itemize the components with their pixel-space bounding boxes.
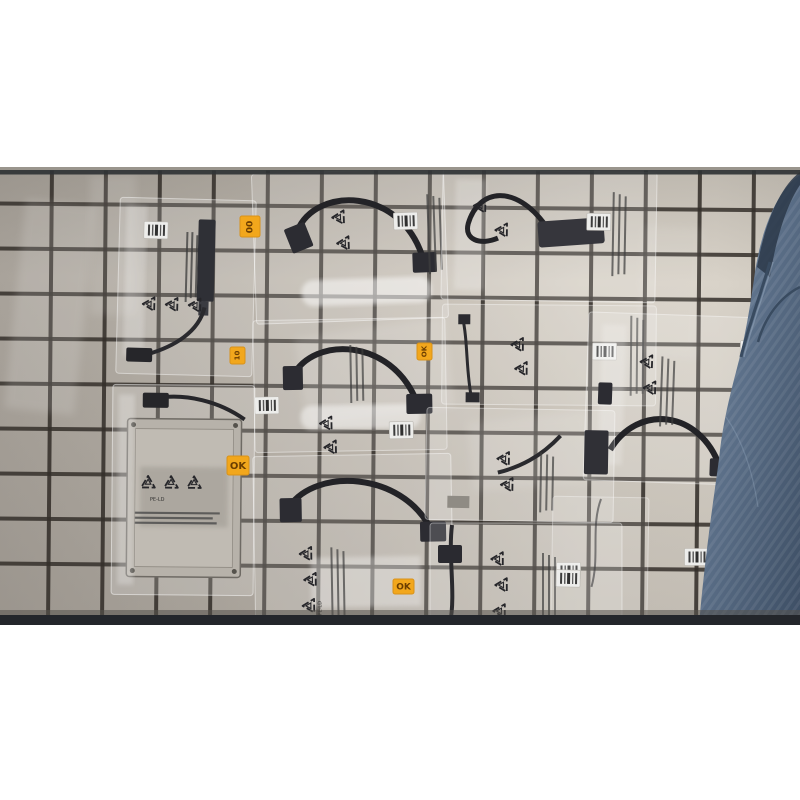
cable-connector bbox=[598, 382, 613, 404]
packaged-part-bag bbox=[551, 496, 649, 625]
connector-strip bbox=[197, 219, 216, 301]
svg-text:OK: OK bbox=[396, 583, 412, 593]
barcode-label bbox=[685, 549, 709, 566]
qc-sticker: OK bbox=[417, 343, 432, 360]
printed-text-lines bbox=[135, 512, 220, 525]
cable-connector bbox=[126, 347, 152, 362]
svg-text:10: 10 bbox=[234, 351, 242, 361]
cable-connector bbox=[584, 430, 609, 474]
barcode-label bbox=[556, 570, 580, 587]
printed-text-lines bbox=[185, 232, 199, 302]
photo-viewer-page: PE-LD PE-LD bbox=[0, 0, 800, 800]
cable-connector bbox=[283, 366, 303, 390]
photo-top-edge bbox=[0, 167, 800, 171]
barcode-label bbox=[393, 212, 418, 230]
barcode-label bbox=[144, 221, 168, 239]
cable-connector bbox=[458, 314, 470, 324]
barcode-label bbox=[587, 213, 611, 230]
packaged-part-bag bbox=[253, 317, 447, 455]
bracket-piece bbox=[447, 496, 469, 508]
cable-connector bbox=[143, 393, 169, 408]
photo-overlay: PE-LD PE-LD bbox=[0, 167, 800, 625]
barcode-label bbox=[255, 397, 279, 414]
svg-text:00: 00 bbox=[246, 221, 256, 234]
packaged-part-bag: PE-LD bbox=[253, 453, 454, 625]
qc-sticker: OK bbox=[227, 456, 249, 475]
photo: PE-LD PE-LD bbox=[0, 167, 800, 625]
qc-sticker: 10 bbox=[230, 347, 245, 364]
qc-sticker: 00 bbox=[240, 216, 260, 237]
cable-connector bbox=[466, 392, 480, 402]
cable-connector bbox=[412, 252, 437, 273]
packaged-part-bag bbox=[251, 168, 448, 325]
qc-sticker: OK bbox=[393, 579, 414, 594]
cable-connector bbox=[279, 498, 301, 522]
svg-text:OK: OK bbox=[421, 345, 429, 357]
recycle-material-label: PE-LD bbox=[150, 497, 165, 503]
barcode-label bbox=[389, 421, 413, 438]
packaged-part-bag: PE-LD bbox=[111, 384, 255, 595]
svg-text:OK: OK bbox=[230, 461, 248, 472]
cable-connector bbox=[438, 545, 462, 563]
packaged-part-bag bbox=[441, 169, 657, 303]
